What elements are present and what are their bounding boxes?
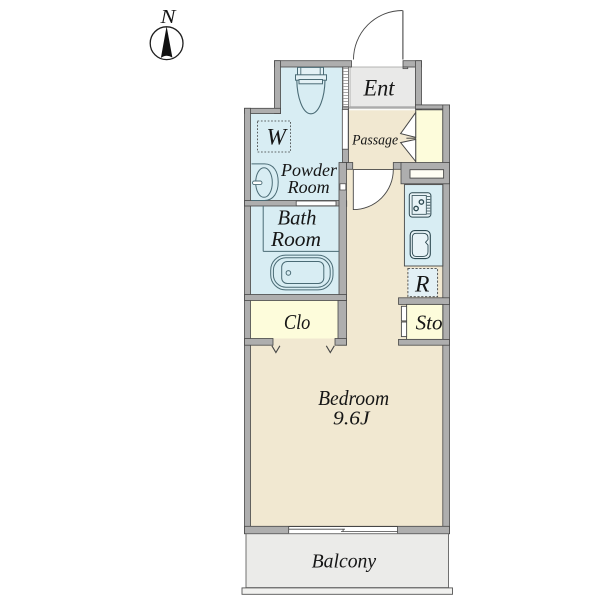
svg-text:Ent: Ent xyxy=(363,76,396,101)
svg-text:W: W xyxy=(267,125,288,150)
svg-text:Room: Room xyxy=(287,177,330,197)
svg-text:R: R xyxy=(414,271,430,296)
svg-text:9.6J: 9.6J xyxy=(333,407,371,429)
svg-text:Room: Room xyxy=(270,227,321,251)
svg-text:Passage: Passage xyxy=(351,133,398,149)
svg-text:Bedroom: Bedroom xyxy=(318,386,389,410)
svg-text:Balcony: Balcony xyxy=(312,550,377,572)
svg-text:Bath: Bath xyxy=(278,205,317,229)
svg-text:Clo: Clo xyxy=(284,310,311,334)
svg-text:Sto: Sto xyxy=(416,311,443,335)
svg-text:N: N xyxy=(159,7,176,28)
